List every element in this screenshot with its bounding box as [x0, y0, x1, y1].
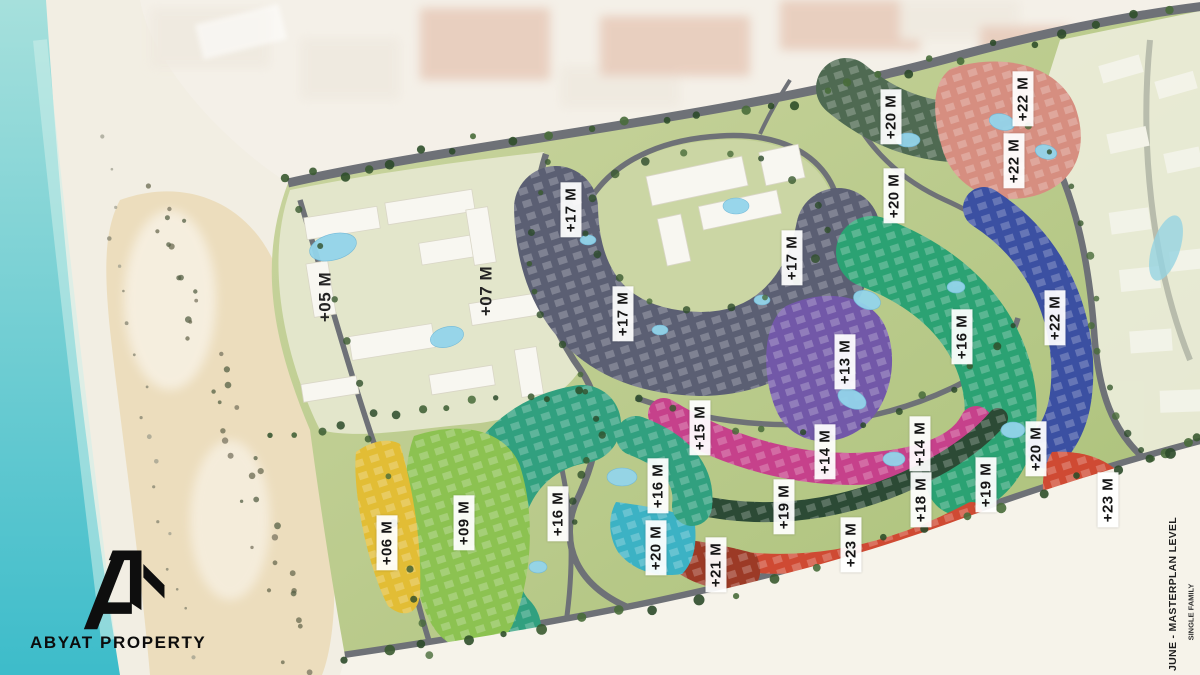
side-note-subtitle: SINGLE FAMILY [1187, 584, 1196, 641]
abyat-logo-mark [80, 546, 176, 630]
abyat-logo-text: ABYAT PROPERTY [30, 633, 250, 653]
masterplan-canvas: +05 M+07 M+17 M+17 M+17 M+20 M+20 M+22 M… [0, 0, 1200, 675]
abyat-logo: ABYAT PROPERTY [30, 546, 250, 653]
side-note-title: JUNE - MASTERPLAN LEVEL [1167, 517, 1179, 671]
